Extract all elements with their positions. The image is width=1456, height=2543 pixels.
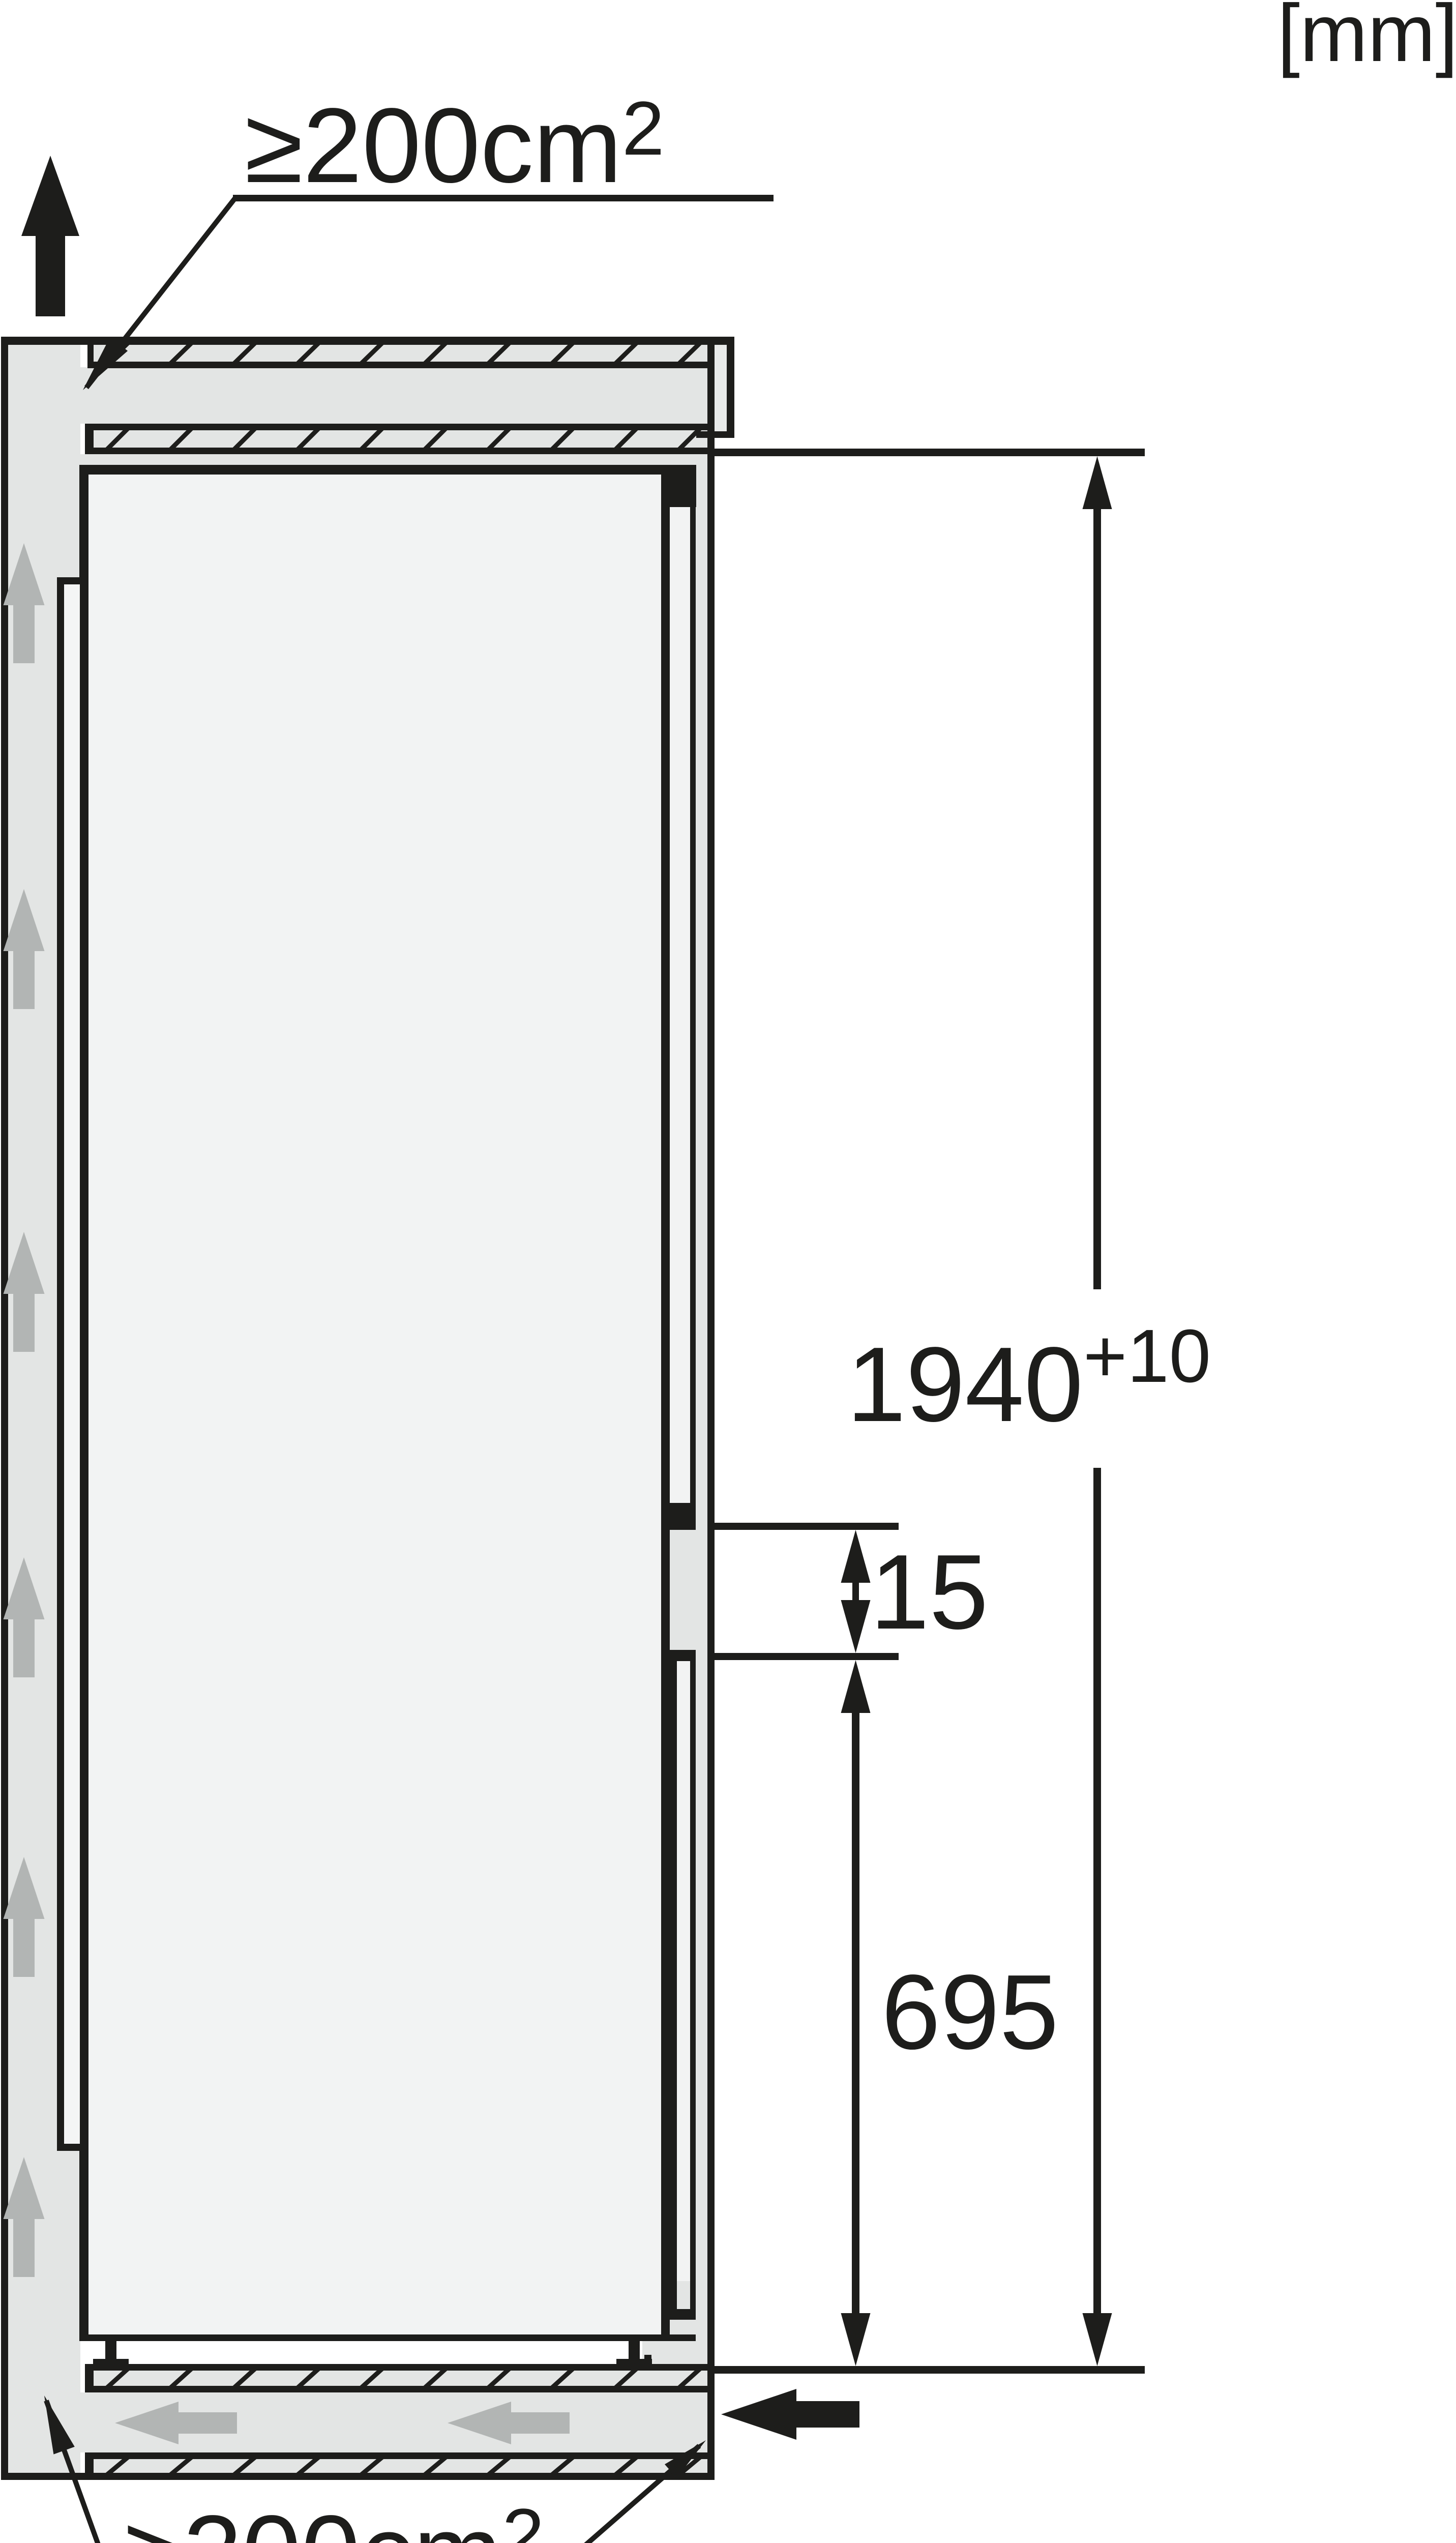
svg-text:[mm]: [mm] bbox=[1277, 0, 1456, 78]
svg-text:15: 15 bbox=[870, 1533, 988, 1651]
svg-text:≥200cm2: ≥200cm2 bbox=[125, 2493, 544, 2543]
svg-text:695: 695 bbox=[881, 1953, 1059, 2072]
svg-text:≥200cm2: ≥200cm2 bbox=[245, 85, 664, 205]
